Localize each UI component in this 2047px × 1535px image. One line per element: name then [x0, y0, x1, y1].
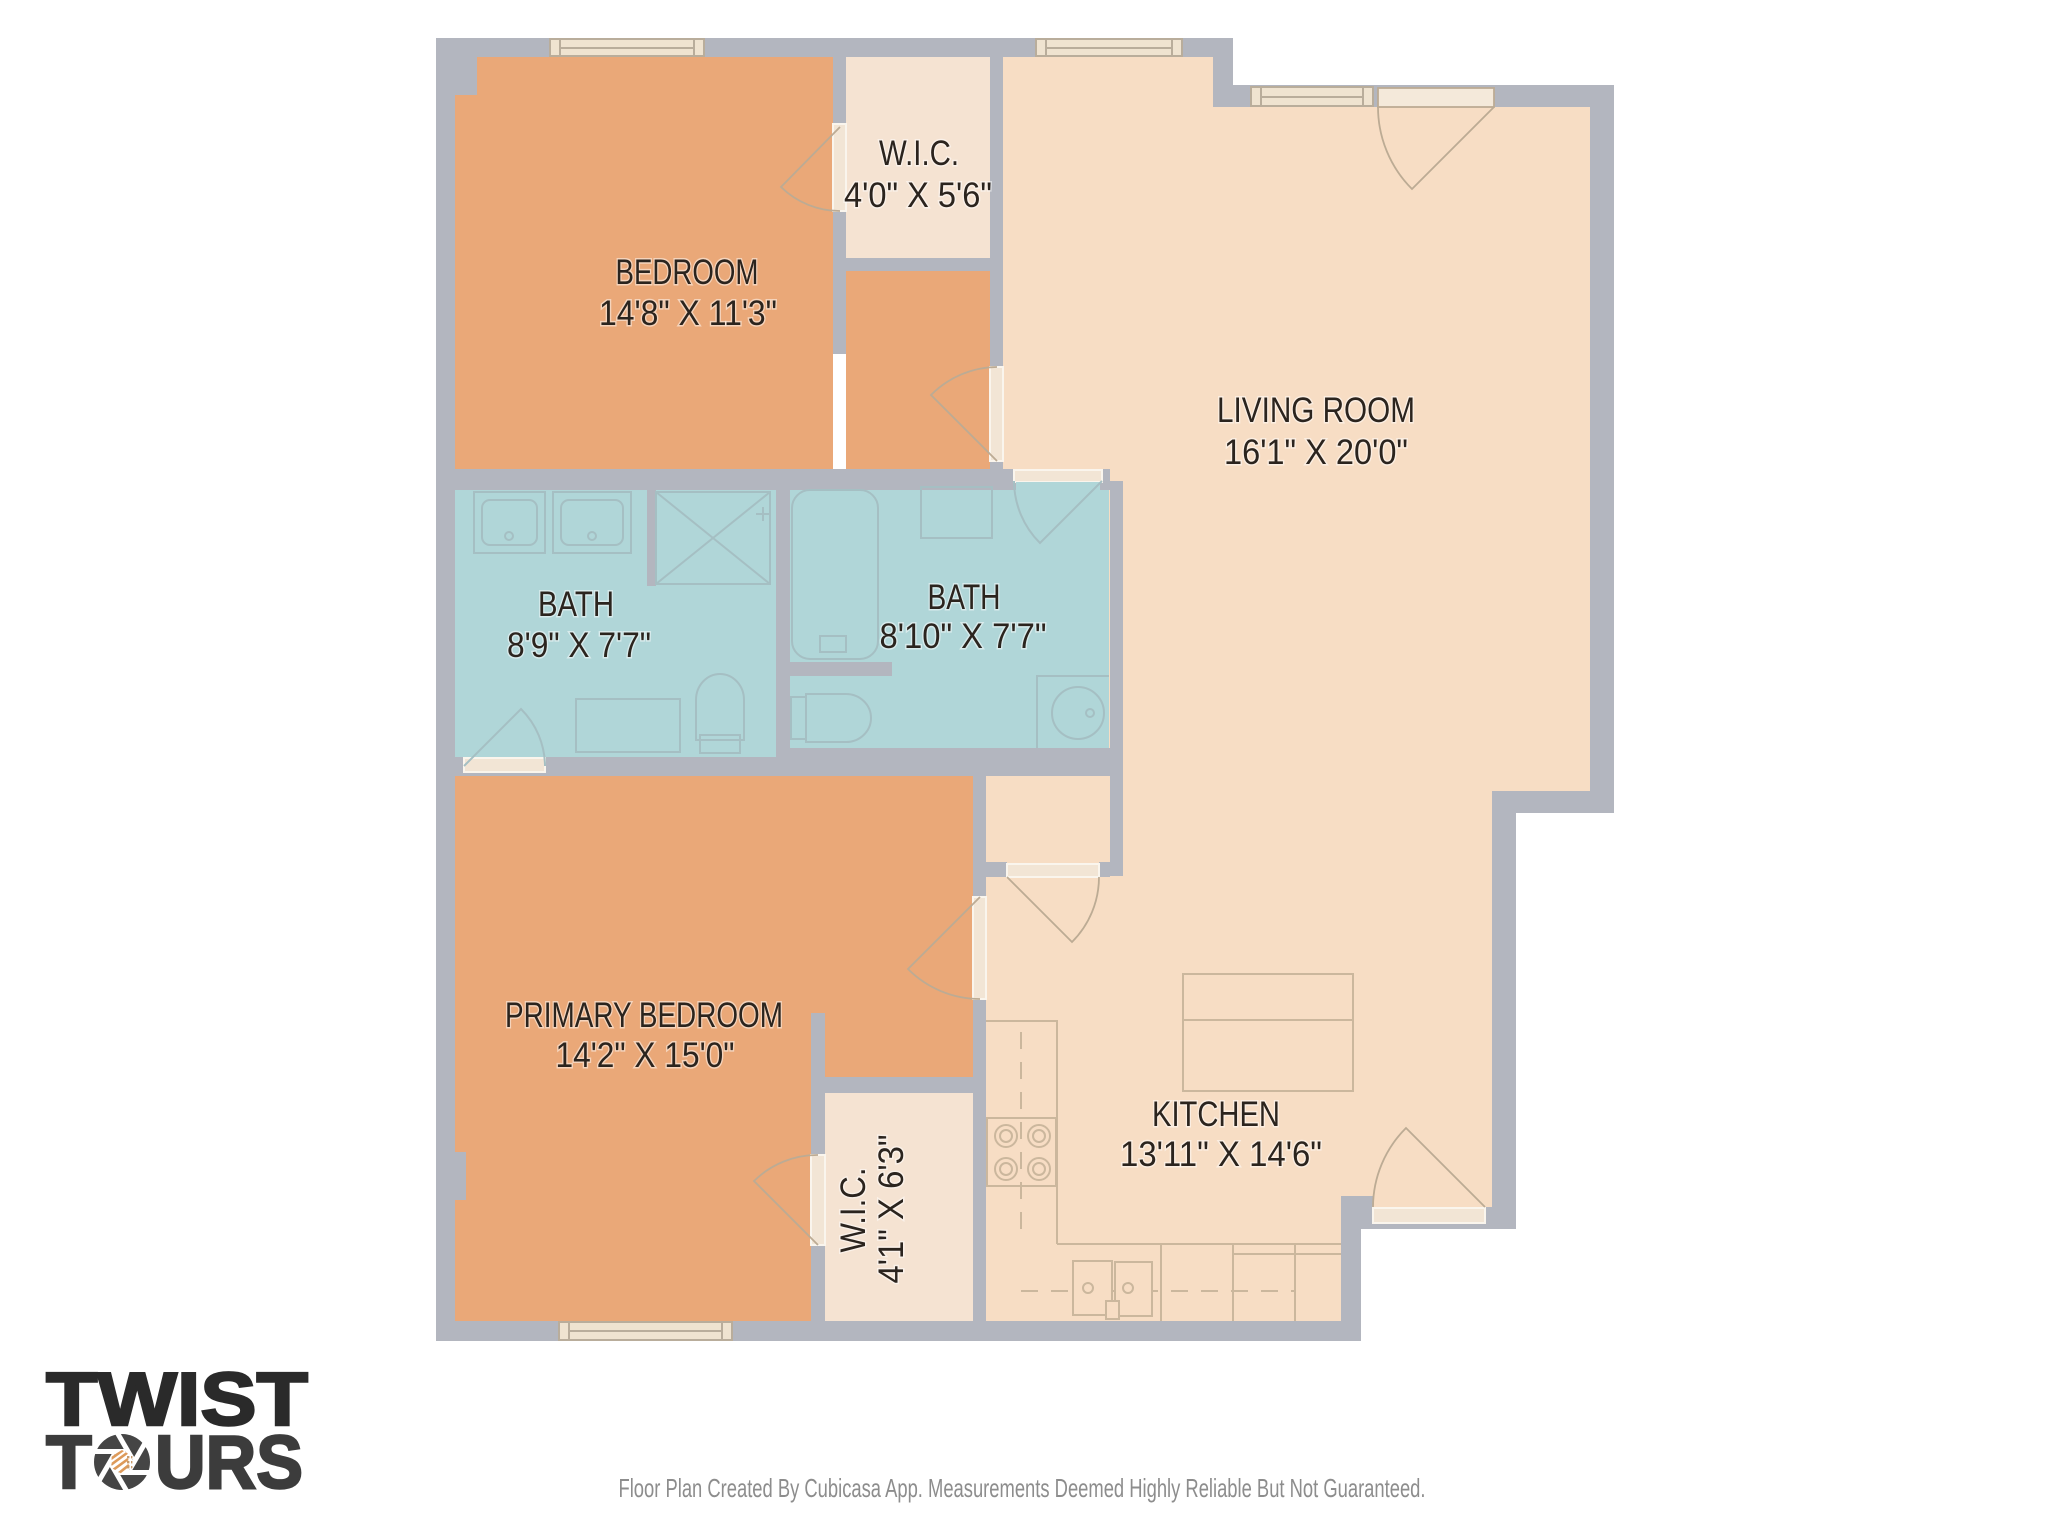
- svg-text:4'0" X 5'6": 4'0" X 5'6": [844, 176, 992, 215]
- svg-text:14'2" X 15'0": 14'2" X 15'0": [556, 1036, 735, 1075]
- svg-text:8'10" X 7'7": 8'10" X 7'7": [880, 617, 1047, 656]
- svg-text:LIVING ROOM: LIVING ROOM: [1217, 391, 1415, 430]
- svg-text:W.I.C.: W.I.C.: [834, 1168, 873, 1253]
- svg-text:URS: URS: [155, 1420, 303, 1504]
- svg-text:BEDROOM: BEDROOM: [616, 253, 759, 292]
- svg-text:W.I.C.: W.I.C.: [879, 134, 959, 173]
- svg-text:PRIMARY BEDROOM: PRIMARY BEDROOM: [505, 996, 783, 1035]
- svg-text:4'1" X 6'3": 4'1" X 6'3": [872, 1135, 911, 1284]
- svg-text:KITCHEN: KITCHEN: [1152, 1095, 1280, 1134]
- svg-text:BATH: BATH: [538, 585, 614, 624]
- svg-text:BATH: BATH: [928, 578, 1001, 617]
- svg-text:T: T: [46, 1420, 92, 1504]
- svg-text:14'8" X 11'3": 14'8" X 11'3": [599, 294, 777, 333]
- svg-text:13'11" X 14'6": 13'11" X 14'6": [1120, 1135, 1322, 1174]
- svg-text:16'1" X 20'0": 16'1" X 20'0": [1224, 433, 1408, 472]
- svg-text:8'9" X 7'7": 8'9" X 7'7": [507, 626, 651, 665]
- svg-text:Floor Plan Created By Cubicasa: Floor Plan Created By Cubicasa App. Meas…: [619, 1473, 1426, 1503]
